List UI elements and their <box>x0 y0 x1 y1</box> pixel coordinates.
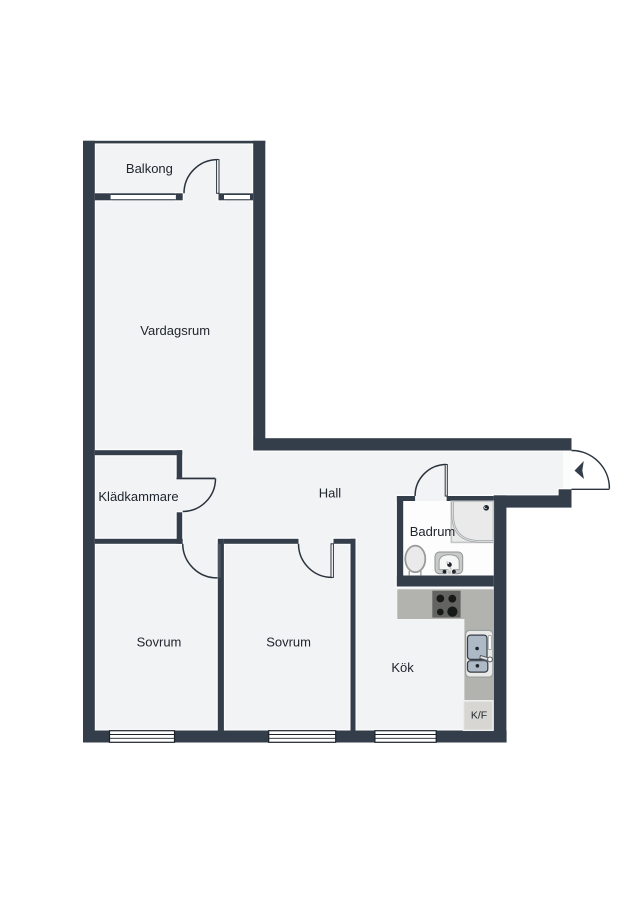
svg-text:Sovrum: Sovrum <box>266 635 311 650</box>
svg-text:Sovrum: Sovrum <box>137 635 182 650</box>
svg-text:Klädkammare: Klädkammare <box>98 489 178 504</box>
svg-text:Vardagsrum: Vardagsrum <box>140 323 210 338</box>
svg-text:Kök: Kök <box>391 660 414 675</box>
svg-text:Hall: Hall <box>319 486 342 501</box>
svg-text:Badrum: Badrum <box>410 524 456 539</box>
svg-text:K/F: K/F <box>471 710 487 722</box>
svg-text:Balkong: Balkong <box>126 161 173 176</box>
